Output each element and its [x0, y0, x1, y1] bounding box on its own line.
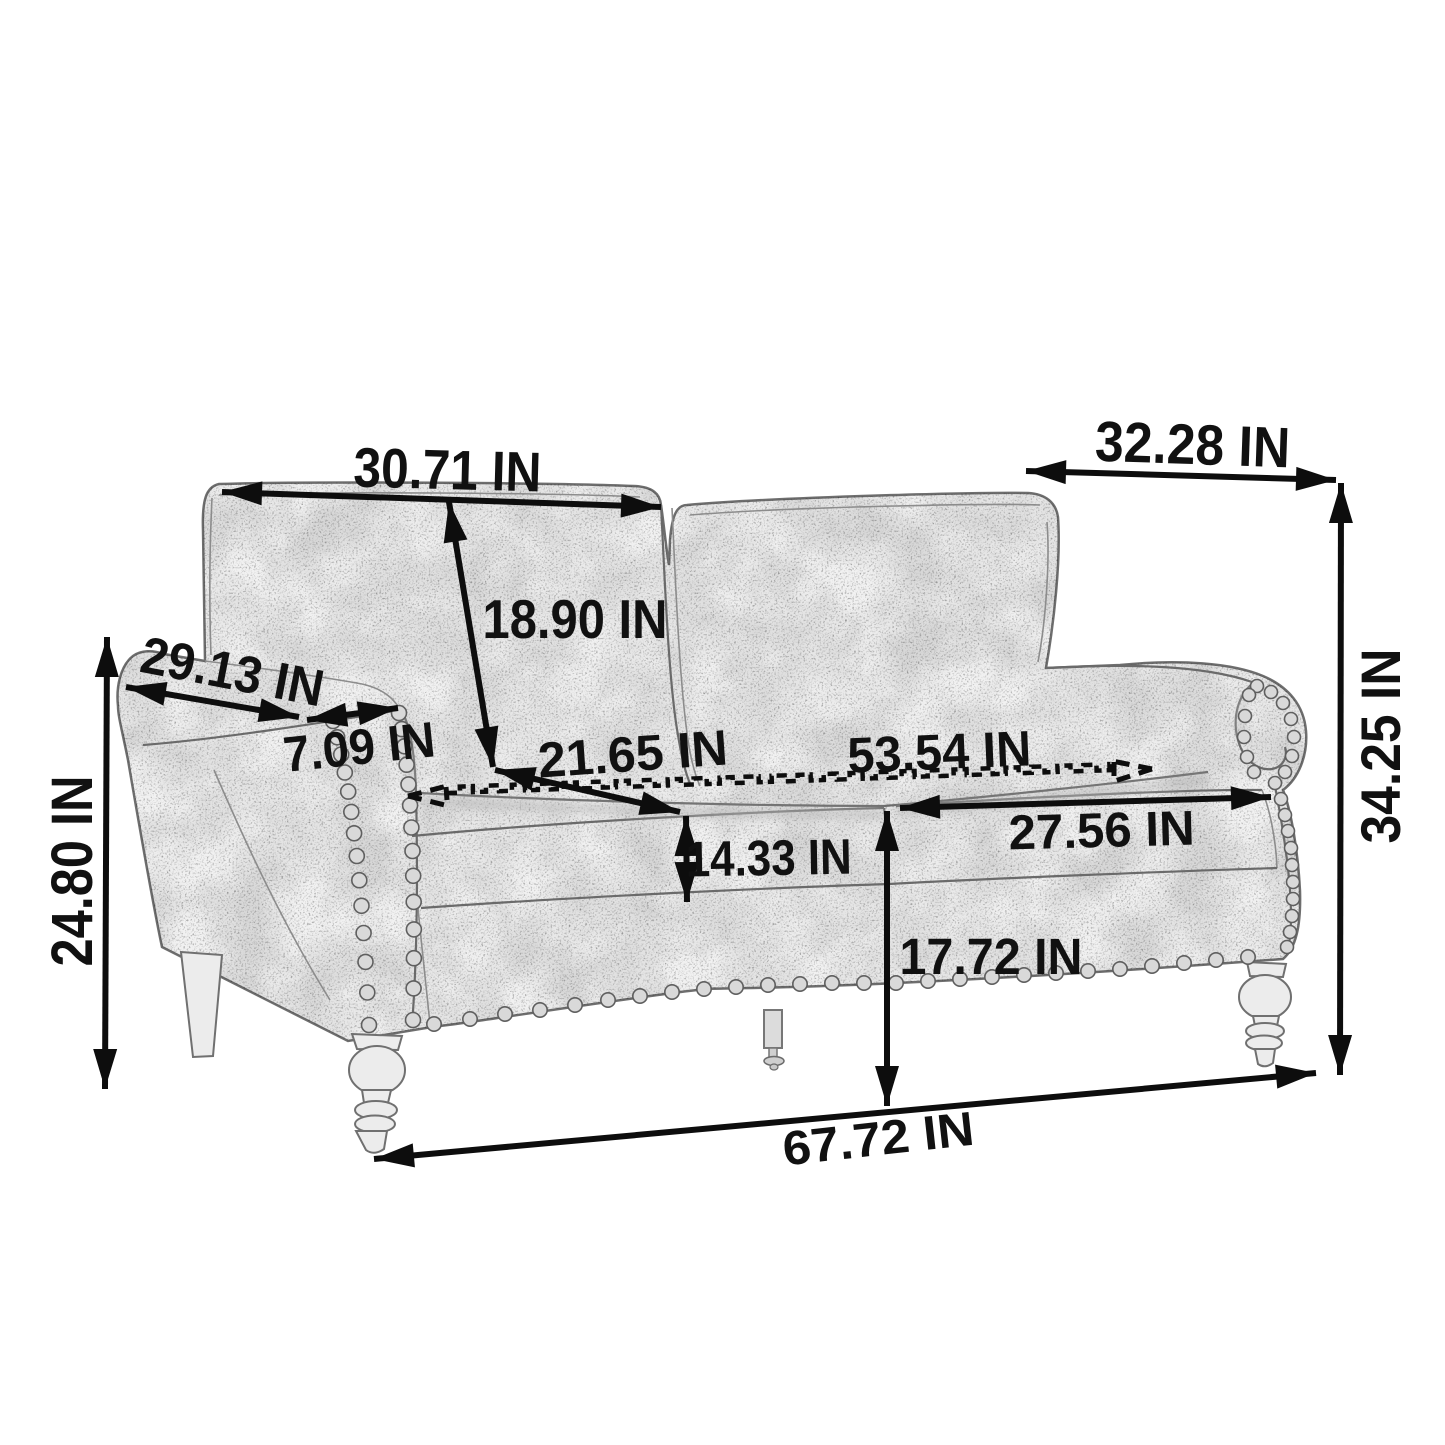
svg-text:34.25 IN: 34.25 IN	[1349, 649, 1412, 844]
svg-text:17.72 IN: 17.72 IN	[900, 928, 1083, 985]
svg-text:53.54 IN: 53.54 IN	[846, 720, 1032, 783]
svg-text:14.33 IN: 14.33 IN	[685, 829, 852, 888]
svg-text:24.80 IN: 24.80 IN	[40, 776, 105, 967]
svg-text:18.90 IN: 18.90 IN	[483, 588, 668, 650]
svg-text:27.56 IN: 27.56 IN	[1008, 802, 1195, 861]
svg-text:32.28 IN: 32.28 IN	[1094, 410, 1291, 481]
svg-text:30.71 IN: 30.71 IN	[353, 436, 543, 504]
